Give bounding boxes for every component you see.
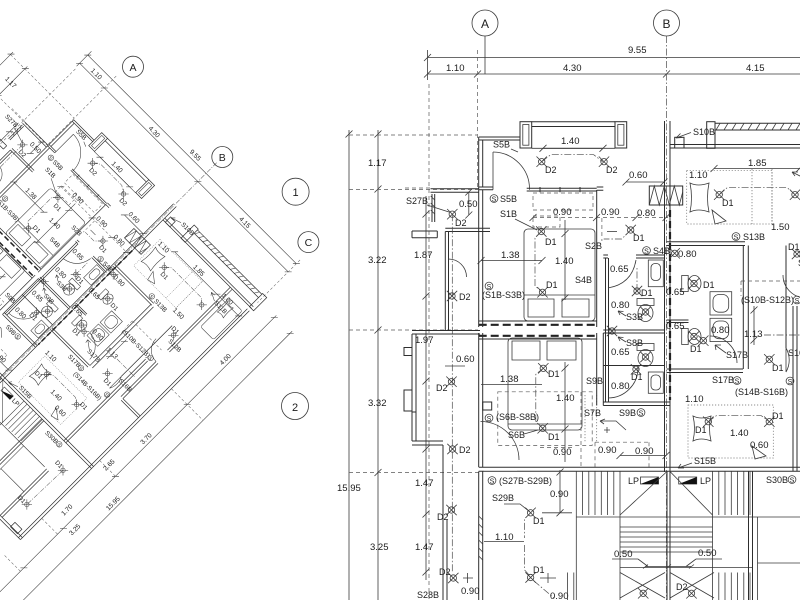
svg-text:1: 1	[293, 187, 299, 199]
svg-text:B: B	[662, 17, 670, 31]
svg-text:C: C	[305, 237, 313, 249]
svg-text:2: 2	[292, 402, 298, 414]
svg-text:A: A	[129, 62, 136, 74]
svg-text:A: A	[481, 17, 489, 31]
svg-text:B: B	[219, 152, 226, 164]
